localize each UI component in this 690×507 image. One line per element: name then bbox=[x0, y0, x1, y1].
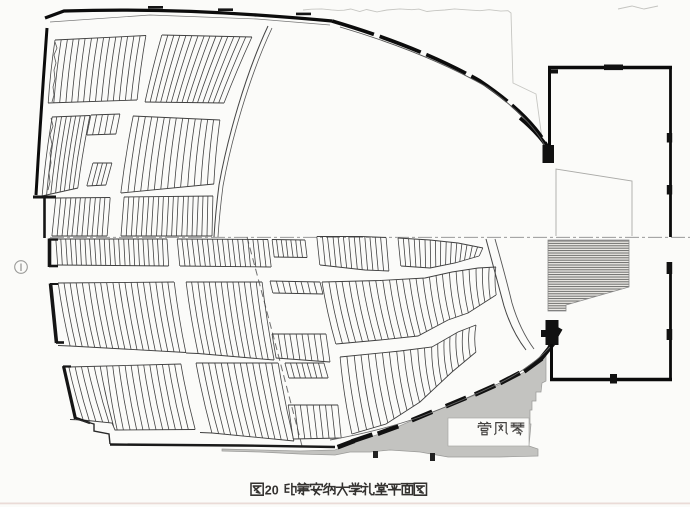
svg-text:20: 20 bbox=[265, 484, 279, 498]
